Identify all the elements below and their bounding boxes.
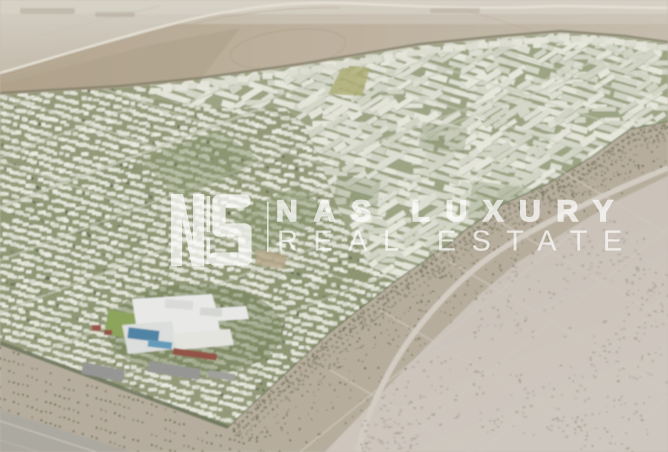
svg-text:NAS LUXURY: NAS LUXURY [276, 195, 629, 228]
svg-text:REAL ESTATE: REAL ESTATE [277, 226, 638, 258]
